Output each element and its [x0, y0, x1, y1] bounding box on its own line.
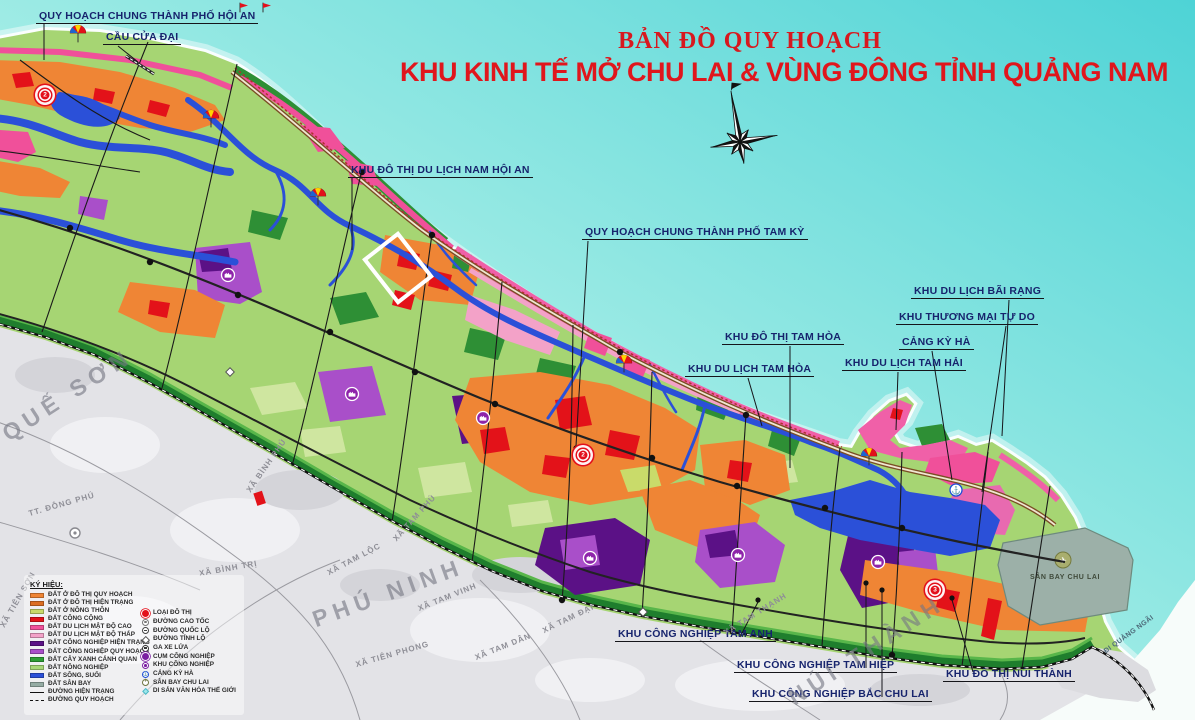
line-planned-road [30, 700, 44, 701]
callout-cua-dai-bridge: CẦU CỬA ĐẠI [103, 31, 181, 45]
legend-row: SÂN BAY CHU LAI [142, 679, 236, 688]
legend-title: KÝ HIỆU: [30, 580, 238, 589]
callout-kcn-tam-anh: KHU CÔNG NGHIỆP TAM ANH [615, 628, 776, 642]
legend-row: ĐƯỜNG QUỐC LỘ [142, 626, 236, 635]
swatch-agriculture [30, 665, 44, 670]
swatch-industry-planned [30, 649, 44, 654]
title-line-1: BẢN ĐỒ QUY HOẠCH [400, 28, 1100, 55]
airport-icon [142, 679, 149, 686]
legend-row: CỤM CÔNG NGHIỆP [142, 652, 236, 661]
line-existing-road [30, 692, 44, 693]
city-marker-hoi-an: 2 [41, 91, 50, 100]
industrial-cluster-icon [142, 653, 149, 660]
legend-row: ĐƯỜNG TỈNH LỘ [142, 635, 236, 644]
swatch-river [30, 673, 44, 678]
world-heritage-icon [142, 688, 150, 696]
legend-row: ĐẤT Ở ĐÔ THỊ QUY HOẠCH [30, 591, 238, 599]
callout-cang-ky-ha: CẢNG KỲ HÀ [899, 336, 974, 350]
callout-hoi-an-plan: QUY HOẠCH CHUNG THÀNH PHỐ HỘI AN [36, 10, 258, 24]
legend-row: GA XE LỬA [142, 644, 236, 653]
callout-tam-ky-plan: QUY HOẠCH CHUNG THÀNH PHỐ TAM KỲ [582, 226, 808, 240]
swatch-urban-planned [30, 593, 44, 598]
swatch-airport-land [30, 682, 44, 687]
airport-label: SÂN BAY CHU LAI [1030, 574, 1100, 581]
national-road-icon [142, 627, 149, 634]
title-line-2: KHU KINH TẾ MỞ CHU LAI & VÙNG ĐÔNG TỈNH … [400, 57, 1100, 88]
map-canvas[interactable]: ✈ [0, 0, 1195, 720]
train-station-icon [142, 645, 149, 652]
city-marker-tam-ky: 2 [579, 451, 588, 460]
swatch-industry-existing [30, 641, 44, 646]
legend-row: LOẠI ĐÔ THỊ [142, 609, 236, 618]
swatch-public [30, 617, 44, 622]
callout-kdl-tam-hai: KHU DU LỊCH TAM HẢI [842, 357, 966, 371]
svg-text:⚓: ⚓ [951, 485, 961, 495]
swatch-urban-existing [30, 601, 44, 606]
map-title: BẢN ĐỒ QUY HOẠCH KHU KINH TẾ MỞ CHU LAI … [400, 28, 1100, 88]
callout-nam-hoi-an: KHU ĐÔ THỊ DU LỊCH NAM HỘI AN [348, 164, 533, 178]
legend-row: ĐƯỜNG CAO TỐC [142, 618, 236, 627]
legend-symbols-column: LOẠI ĐÔ THỊ ĐƯỜNG CAO TỐC ĐƯỜNG QUỐC LỘ … [142, 609, 236, 696]
swatch-tourism-high [30, 625, 44, 630]
callout-kcn-bac-chu-lai: KHU CÔNG NGHIỆP BẮC CHU LAI [749, 688, 932, 702]
swatch-green-landscape [30, 657, 44, 662]
callout-free-trade-zone: KHU THƯƠNG MẠI TỰ DO [896, 311, 1038, 325]
legend-row: DI SẢN VĂN HÓA THẾ GIỚI [142, 687, 236, 696]
legend-row: CẢNG KỲ HÀ [142, 670, 236, 679]
expressway-icon [142, 619, 149, 626]
callout-kdt-nui-thanh: KHU ĐÔ THỊ NÚI THÀNH [943, 668, 1075, 682]
swatch-rural [30, 609, 44, 614]
callout-kdl-tam-hoa: KHU DU LỊCH TAM HÒA [685, 363, 814, 377]
anchor-icon: ⚓ [950, 484, 962, 496]
swatch-tourism-low [30, 633, 44, 638]
provincial-road-icon [142, 635, 150, 643]
legend-row: ĐẤT Ở ĐÔ THỊ HIỆN TRẠNG [30, 599, 238, 607]
industrial-zone-icon [142, 662, 149, 669]
port-icon [142, 671, 149, 678]
callout-bai-rang: KHU DU LỊCH BÃI RẠNG [911, 285, 1044, 299]
legend: KÝ HIỆU: ĐẤT Ở ĐÔ THỊ QUY HOẠCH ĐẤT Ở ĐÔ… [24, 575, 244, 715]
callout-kdt-tam-hoa: KHU ĐÔ THỊ TAM HÒA [722, 331, 844, 345]
legend-row: KHU CÔNG NGHIỆP [142, 661, 236, 670]
city-type-icon [142, 610, 149, 617]
legend-row: ĐƯỜNG QUY HOẠCH [30, 696, 238, 704]
